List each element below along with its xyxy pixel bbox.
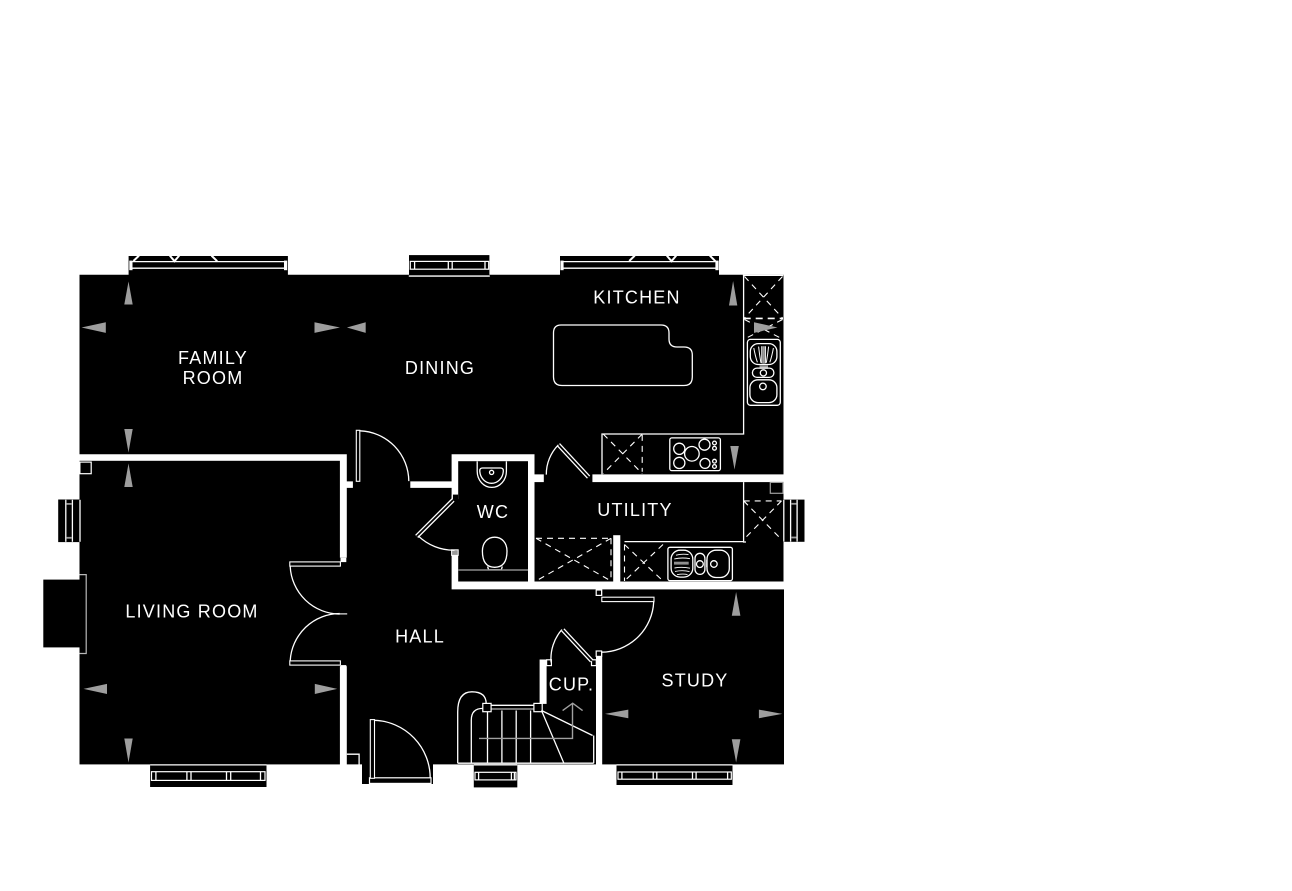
svg-text:KITCHEN: KITCHEN <box>593 288 680 308</box>
svg-text:HALL: HALL <box>395 627 445 647</box>
svg-text:STUDY: STUDY <box>661 671 728 691</box>
svg-text:DINING: DINING <box>405 358 475 378</box>
svg-text:LIVING ROOM: LIVING ROOM <box>125 602 258 622</box>
svg-text:WC: WC <box>477 502 509 522</box>
svg-text:FAMILY: FAMILY <box>178 348 248 368</box>
svg-text:UTILITY: UTILITY <box>597 500 672 520</box>
svg-text:CUP.: CUP. <box>549 675 595 695</box>
svg-text:ROOM: ROOM <box>183 368 244 388</box>
